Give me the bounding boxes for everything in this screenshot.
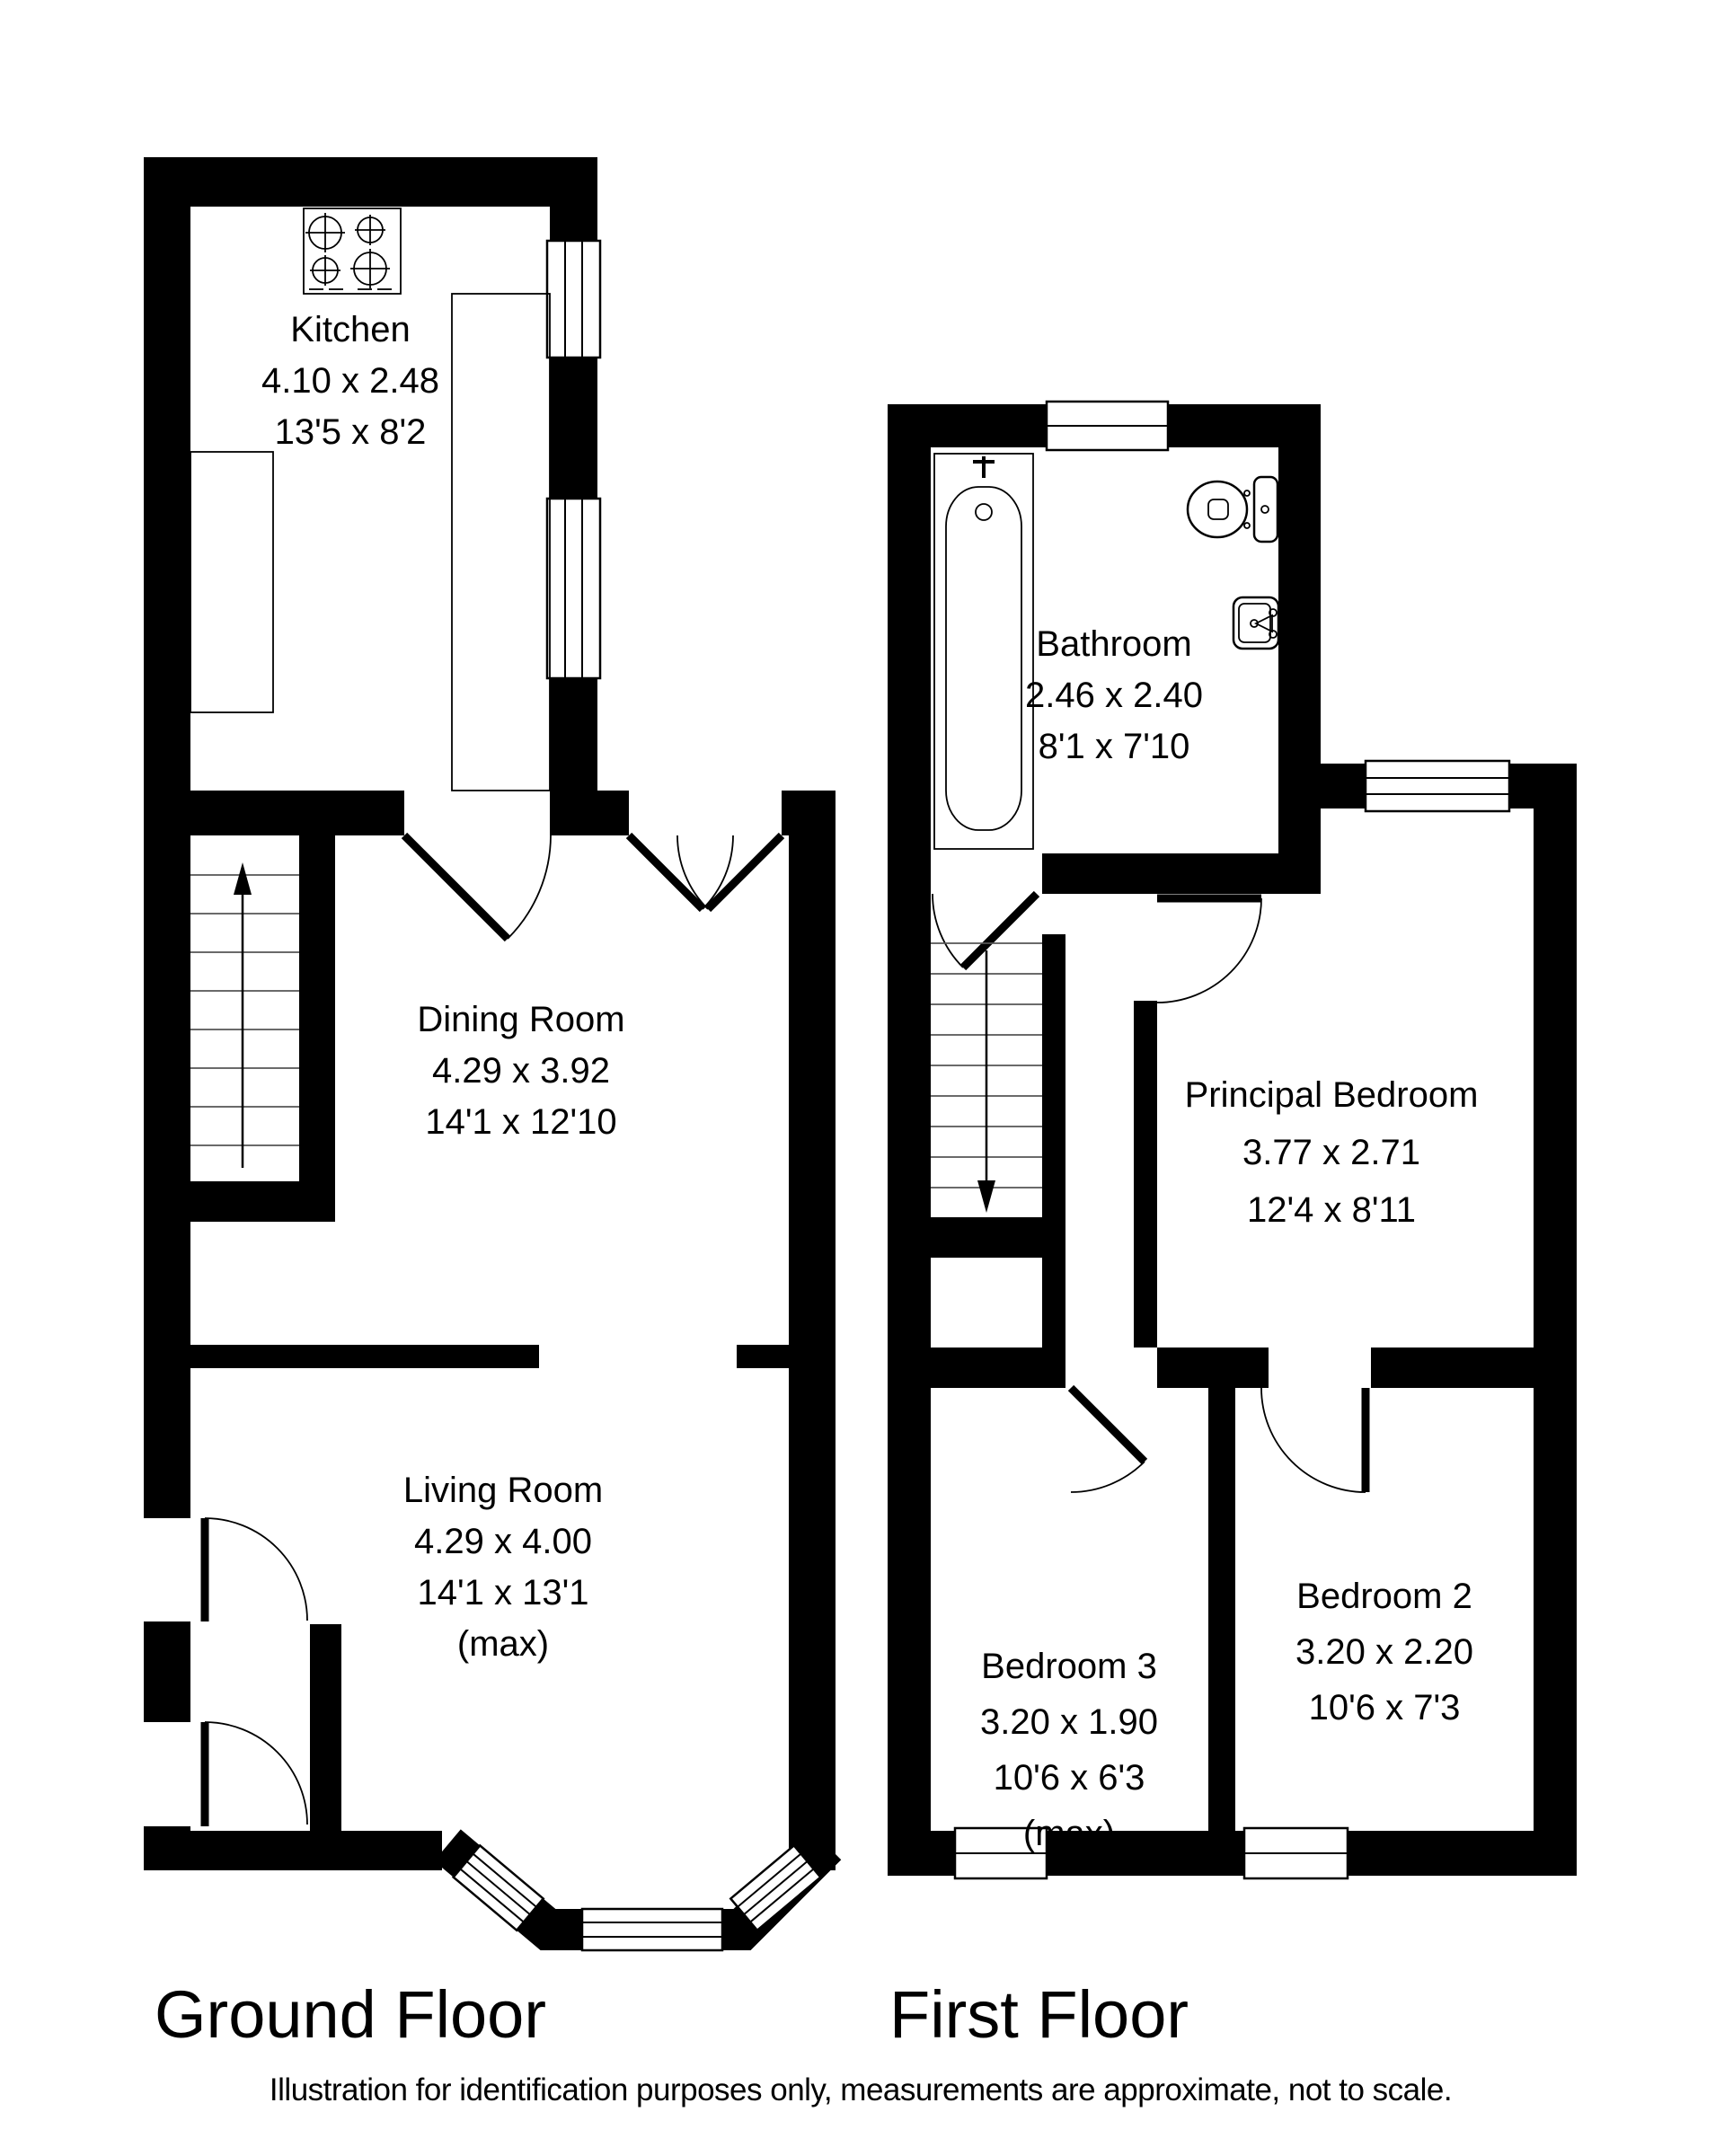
principal-bedroom-window: [1366, 761, 1509, 811]
wall-segment: [1208, 1388, 1235, 1831]
room-size-imperial: 14'1 x 13'1: [418, 1573, 589, 1613]
wall-segment: [931, 1217, 1065, 1258]
ground-floor-title: Ground Floor: [155, 1977, 546, 2052]
staircase-up: [190, 862, 299, 1168]
bay-window-center-pane: [582, 1909, 722, 1950]
door-leaf: [629, 835, 703, 909]
first-floor-plan: Bathroom 2.46 x 2.40 8'1 x 7'10 Principa…: [888, 402, 1577, 2052]
wall-segment: [931, 1347, 1042, 1388]
floorplan-page: Kitchen 4.10 x 2.48 13'5 x 8'2 Dining Ro…: [0, 0, 1733, 2156]
french-doors: [629, 835, 782, 909]
wall-segment: [310, 1624, 341, 1831]
kitchen-room-label: Kitchen 4.10 x 2.48 13'5 x 8'2: [261, 310, 439, 452]
room-size-imperial: 10'6 x 6'3: [994, 1758, 1145, 1798]
room-size-note: (max): [1023, 1814, 1115, 1853]
door-arc: [508, 835, 551, 939]
kitchen-counter: [452, 294, 550, 791]
wall-segment: [144, 791, 404, 835]
door-arc: [1157, 898, 1261, 1003]
first-floor-title: First Floor: [889, 1977, 1189, 2052]
sink-icon: [1233, 597, 1278, 649]
bedroom-2-door: [1261, 1388, 1366, 1492]
room-name: Dining Room: [417, 1000, 624, 1039]
room-name: Bedroom 3: [981, 1647, 1157, 1686]
principal-bedroom-door: [1157, 898, 1261, 1003]
staircase-down: [931, 943, 1042, 1213]
door-arc: [205, 1722, 307, 1825]
bathroom-door: [933, 894, 1037, 968]
bathroom-window: [1047, 402, 1168, 450]
wall-segment: [550, 207, 597, 241]
hall-door: [142, 1722, 307, 1826]
principal-bedroom-label: Principal Bedroom 3.77 x 2.71 12'4 x 8'1…: [1185, 1075, 1479, 1230]
door-leaf: [1071, 1388, 1145, 1462]
wall-segment: [190, 1181, 335, 1222]
wall-segment: [1278, 404, 1321, 894]
wall-segment: [190, 1345, 539, 1368]
bedroom-3-label: Bedroom 3 3.20 x 1.90 10'6 x 6'3 (max): [980, 1647, 1158, 1853]
room-size-imperial: 14'1 x 12'10: [425, 1102, 616, 1142]
door-opening: [142, 1722, 192, 1826]
wall-segment: [1042, 1258, 1065, 1388]
bay-window: [447, 1845, 827, 1950]
wall-segment: [1042, 934, 1065, 1217]
room-size-imperial: 10'6 x 7'3: [1309, 1688, 1461, 1727]
wall-segment: [144, 1831, 442, 1870]
room-name: Principal Bedroom: [1185, 1075, 1479, 1115]
room-name: Living Room: [403, 1471, 603, 1510]
wall-segment: [550, 791, 597, 835]
stairs-down-arrow-icon: [977, 950, 995, 1213]
wall-segment: [1134, 1001, 1157, 1347]
kitchen-door: [404, 835, 551, 939]
window-pane: [547, 241, 600, 358]
disclaimer-text: Illustration for identification purposes…: [270, 2072, 1452, 2107]
window-pane: [547, 499, 600, 678]
wall-segment: [144, 157, 597, 207]
room-size-metric: 3.77 x 2.71: [1242, 1133, 1420, 1172]
wall-segment: [1157, 1347, 1269, 1388]
bathroom-room-label: Bathroom 2.46 x 2.40 8'1 x 7'10: [1025, 624, 1203, 766]
bedroom-2-window: [1244, 1828, 1348, 1878]
room-size-metric: 4.29 x 4.00: [414, 1522, 592, 1561]
kitchen-window-upper: [547, 241, 600, 358]
room-size-imperial: 12'4 x 8'11: [1247, 1190, 1416, 1230]
wall-segment: [737, 1345, 789, 1368]
toilet-icon: [1188, 477, 1278, 542]
wall-segment: [1371, 1347, 1577, 1388]
wall-segment: [1534, 764, 1577, 1876]
room-size-metric: 3.20 x 2.20: [1295, 1632, 1473, 1672]
room-name: Bathroom: [1036, 624, 1191, 664]
ground-floor-plan: Kitchen 4.10 x 2.48 13'5 x 8'2 Dining Ro…: [142, 157, 836, 2052]
wall-segment: [299, 791, 335, 1222]
front-door: [142, 1518, 307, 1621]
room-size-note: (max): [457, 1624, 549, 1664]
bedroom-2-label: Bedroom 2 3.20 x 2.20 10'6 x 7'3: [1295, 1577, 1473, 1727]
door-leaf: [963, 894, 1037, 968]
bathtub-icon: [934, 454, 1033, 849]
door-opening: [142, 1518, 192, 1621]
dining-room-label: Dining Room 4.29 x 3.92 14'1 x 12'10: [417, 1000, 624, 1142]
wall-segment: [597, 791, 629, 835]
floorplan-canvas: Kitchen 4.10 x 2.48 13'5 x 8'2 Dining Ro…: [0, 0, 1733, 2156]
door-leaf: [708, 835, 782, 909]
wall-segment: [1042, 853, 1321, 894]
kitchen-window-lower: [547, 499, 600, 678]
wall-segment: [550, 678, 597, 791]
door-arc: [933, 894, 963, 968]
room-name: Kitchen: [290, 310, 410, 349]
room-size-metric: 4.29 x 3.92: [432, 1051, 610, 1091]
wall-segment: [789, 791, 836, 1870]
room-name: Bedroom 2: [1296, 1577, 1472, 1616]
room-size-metric: 3.20 x 1.90: [980, 1702, 1158, 1742]
living-room-label: Living Room 4.29 x 4.00 14'1 x 13'1 (max…: [403, 1471, 603, 1664]
door-leaf: [404, 835, 508, 939]
door-arc: [1261, 1388, 1366, 1492]
hob-icon: [304, 208, 401, 294]
door-arc: [205, 1518, 307, 1621]
wall-segment: [550, 358, 597, 499]
door-arc: [1071, 1462, 1145, 1492]
room-size-imperial: 8'1 x 7'10: [1039, 727, 1190, 766]
bedroom-3-door: [1071, 1388, 1145, 1492]
room-size-metric: 4.10 x 2.48: [261, 361, 439, 401]
kitchen-counter: [190, 452, 273, 712]
stairs-up-arrow-icon: [234, 862, 252, 1168]
wall-segment: [888, 404, 931, 1876]
window-pane: [1366, 761, 1509, 811]
room-size-metric: 2.46 x 2.40: [1025, 676, 1203, 715]
room-size-imperial: 13'5 x 8'2: [275, 412, 427, 452]
